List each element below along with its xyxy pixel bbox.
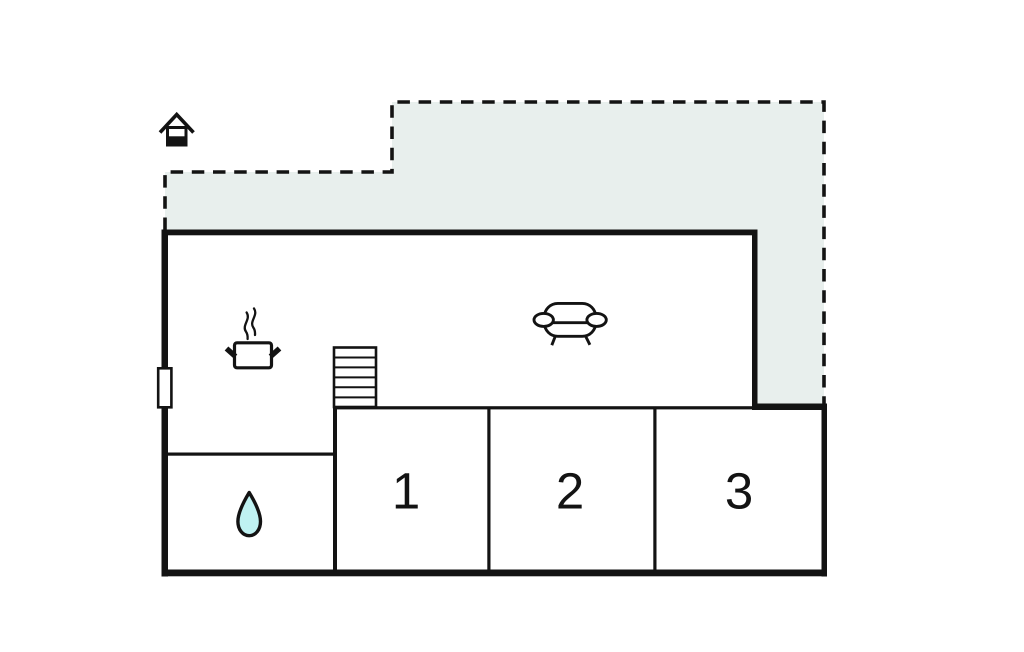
svg-text:1: 1	[392, 463, 420, 520]
svg-text:2: 2	[556, 463, 584, 520]
svg-text:3: 3	[725, 463, 753, 520]
